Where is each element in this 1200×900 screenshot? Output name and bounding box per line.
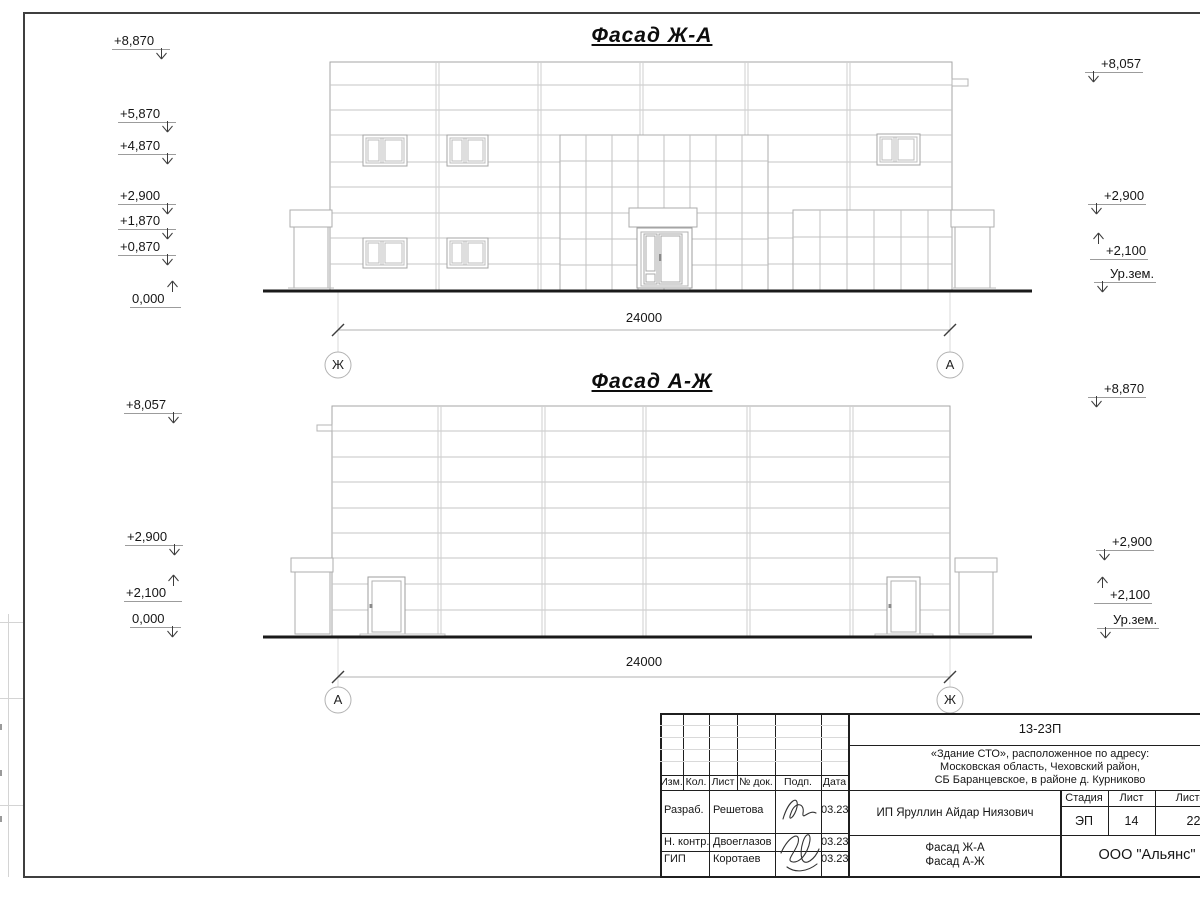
sheets-value: 22 [1155, 814, 1200, 828]
elevation-arrow-icon [161, 254, 174, 266]
signature-scribble [775, 791, 821, 875]
signoff-role: ГИП [664, 853, 686, 865]
elevation-arrow-icon [161, 121, 174, 133]
stamp-grid-line [660, 761, 848, 762]
elevation-arrow-icon [1096, 281, 1109, 293]
margin-stamp-line [0, 698, 23, 699]
stamp-grid-line [660, 749, 848, 750]
elevation-arrow-icon [167, 574, 180, 586]
margin-stamp-line [0, 805, 23, 806]
stamp-col-podp: Подп. [775, 776, 821, 788]
organization-name: ООО "Альянс" [1062, 847, 1200, 863]
stamp-col-data: Дата [821, 776, 848, 788]
elevation-mark: +2,100 [124, 585, 182, 602]
elevation-mark: Ур.зем. [1094, 266, 1156, 283]
elevation-mark: +8,057 [1085, 56, 1143, 73]
elevation-mark: +2,100 [1094, 587, 1152, 604]
project-address-line: Московская область, Чеховский район, [848, 761, 1200, 773]
stamp-col-kol: Кол. [683, 776, 709, 788]
elevation-mark: +2,900 [118, 188, 176, 205]
stamp-grid-line [660, 737, 848, 738]
facade-bottom-dimension: 24000 [594, 654, 694, 669]
stamp-grid-line [1060, 806, 1200, 807]
title-block-border [660, 876, 1200, 878]
elevation-mark: Ур.зем. [1097, 612, 1159, 629]
elevation-arrow-icon [168, 544, 181, 556]
elevation-mark: +8,870 [1088, 381, 1146, 398]
doc-number: 13-23П [848, 721, 1200, 736]
sheet-value: 14 [1108, 814, 1155, 828]
margin-stamp-mark [0, 816, 2, 822]
stamp-grid-line [660, 725, 848, 726]
elevation-mark: 0,000 [130, 291, 181, 308]
stamp-grid-line [660, 790, 1200, 791]
facade-top-dimension: 24000 [594, 310, 694, 325]
elevation-value: +2,100 [1094, 587, 1152, 604]
elevation-arrow-icon [167, 412, 180, 424]
elevation-mark: +0,870 [118, 239, 176, 256]
elevation-mark: +2,900 [125, 529, 183, 546]
elevation-arrow-icon [155, 48, 168, 60]
elevation-arrow-icon [1090, 396, 1103, 408]
margin-stamp-line [0, 622, 23, 623]
axis-marker: А [325, 688, 351, 712]
facade-top-title: Фасад Ж-А [452, 24, 852, 48]
signoff-date: 03.23 [821, 804, 848, 816]
margin-stamp-line [8, 614, 9, 877]
elevation-arrow-icon [1090, 203, 1103, 215]
sheet-content-line: Фасад Ж-А [850, 842, 1060, 854]
stamp-grid-line [848, 835, 1200, 836]
axis-marker: Ж [937, 688, 963, 712]
signoff-name: Коротаев [713, 853, 761, 865]
project-address-line: «Здание СТО», расположенное по адресу: [848, 748, 1200, 760]
project-address-line: СБ Баранцевское, в районе д. Курниково [848, 774, 1200, 786]
sheet-content-line: Фасад А-Ж [850, 856, 1060, 868]
sheets-label: Листов [1155, 792, 1200, 804]
signoff-date: 03.23 [821, 853, 848, 865]
stamp-col-dok: № док. [737, 776, 775, 788]
margin-stamp-mark [0, 724, 2, 730]
stage-label: Стадия [1060, 792, 1108, 804]
stamp-col-list: Лист [709, 776, 737, 788]
elevation-arrow-icon [1099, 627, 1112, 639]
elevation-arrow-icon [1087, 71, 1100, 83]
elevation-value: 0,000 [130, 291, 181, 308]
axis-marker: Ж [325, 353, 351, 377]
stage-value: ЭП [1060, 814, 1108, 828]
stamp-col-izm: Изм. [660, 776, 683, 788]
elevation-mark: +2,900 [1096, 534, 1154, 551]
elevation-arrow-icon [1098, 549, 1111, 561]
facade-bottom-title: Фасад А-Ж [452, 370, 852, 394]
elevation-arrow-icon [161, 153, 174, 165]
signoff-name: Решетова [713, 804, 763, 816]
signoff-role: Разраб. [664, 804, 704, 816]
facade-bottom-drawing [255, 395, 1045, 725]
sheet-label: Лист [1108, 792, 1155, 804]
margin-stamp-mark [0, 770, 2, 776]
client-name: ИП Яруллин Айдар Ниязович [850, 807, 1060, 819]
elevation-arrow-icon [166, 626, 179, 638]
elevation-mark: +1,870 [118, 213, 176, 230]
elevation-value: +2,100 [1090, 243, 1148, 260]
elevation-arrow-icon [166, 280, 179, 292]
elevation-mark: +5,870 [118, 106, 176, 123]
elevation-value: +2,100 [124, 585, 182, 602]
axis-marker: А [937, 353, 963, 377]
sheet-frame-top [23, 12, 1200, 14]
elevation-mark: +2,900 [1088, 188, 1146, 205]
elevation-arrow-icon [1096, 576, 1109, 588]
elevation-arrow-icon [1092, 232, 1105, 244]
title-block: Изм. Кол. Лист № док. Подп. Дата Разраб.… [660, 713, 1200, 878]
title-block-border [660, 713, 1200, 715]
facade-top-drawing [255, 55, 1045, 385]
stamp-grid-line [848, 745, 1200, 746]
signoff-date: 03.23 [821, 836, 848, 848]
elevation-mark: 0,000 [130, 611, 181, 628]
elevation-mark: +2,100 [1090, 243, 1148, 260]
elevation-mark: +4,870 [118, 138, 176, 155]
elevation-mark: +8,057 [124, 397, 182, 414]
elevation-mark: +8,870 [112, 33, 170, 50]
signoff-role: Н. контр. [664, 836, 709, 848]
signoff-name: Двоеглазов [713, 836, 771, 848]
sheet-frame-left [23, 12, 25, 878]
